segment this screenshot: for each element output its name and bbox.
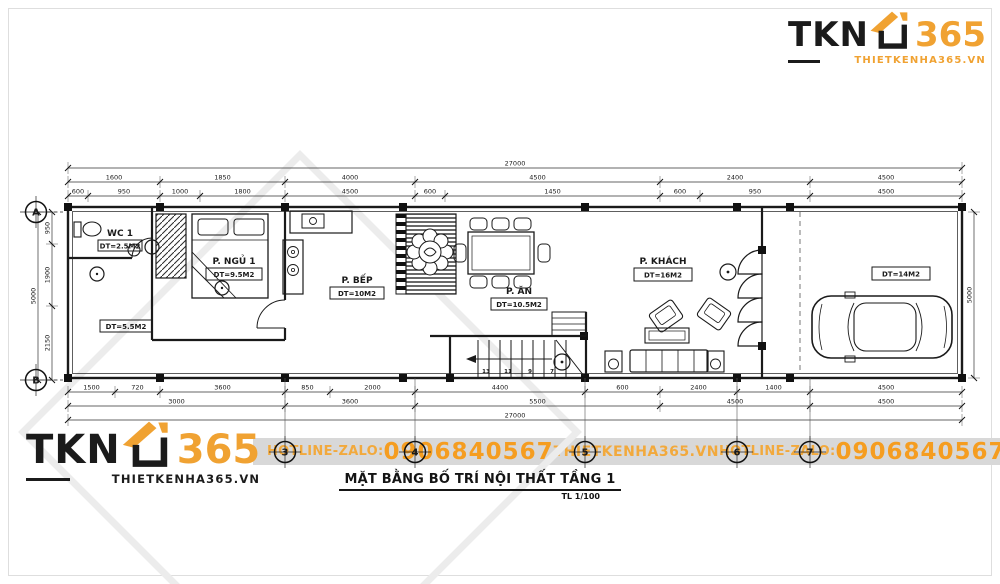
dim-tick	[971, 209, 977, 215]
dining-table	[454, 218, 550, 288]
dim-label: 4500	[878, 384, 895, 392]
plant-partition	[396, 214, 456, 294]
dim-tick	[282, 193, 288, 199]
dim-tick	[807, 179, 813, 185]
dim-tick	[49, 241, 55, 247]
dim-label: 4500	[878, 188, 895, 196]
dim-label: 600	[674, 188, 686, 196]
grid-bubble	[26, 370, 47, 391]
sofa	[630, 350, 708, 372]
dim-tick	[959, 417, 965, 423]
dim-tick	[697, 193, 703, 199]
speaker	[605, 351, 622, 372]
dim-tick	[657, 389, 663, 395]
dim-label: 1600	[106, 174, 123, 182]
dim-label: 4400	[492, 384, 509, 392]
dim-label: 3000	[168, 398, 185, 406]
room-area-dining: DT=10.5M2	[496, 301, 542, 309]
grid-bubble	[26, 202, 47, 223]
dim-tick	[582, 389, 588, 395]
dim-label: 3600	[214, 384, 231, 392]
svg-text:7: 7	[550, 369, 554, 375]
dim-label: 850	[301, 384, 313, 392]
dim-label: 3600	[342, 398, 359, 406]
dim-label: 27000	[505, 412, 526, 420]
drawing-title: MẶT BẰNG BỐ TRÍ NỘI THẤT TẦNG 1	[339, 472, 622, 491]
dim-label: 27000	[505, 160, 526, 168]
hotline-banner: HOTLINE-ZALO: 0906840567 THIETKENHA365.V…	[253, 438, 1000, 465]
dim-tick	[65, 193, 71, 199]
logo-tagline: THIETKENHA365.VN	[112, 474, 260, 486]
logo-underline-bar	[788, 60, 820, 63]
stairs	[466, 312, 586, 377]
dim-label: 1400	[765, 384, 782, 392]
dim-tick	[157, 179, 163, 185]
dim-label: 950	[118, 188, 130, 196]
dim-label: 1800	[234, 188, 251, 196]
logo-365-text: 365	[915, 18, 986, 52]
stove	[283, 240, 303, 294]
dim-tick	[971, 375, 977, 381]
drawing-title-block: MẶT BẰNG BỐ TRÍ NỘI THẤT TẦNG 1 TL 1/100	[330, 468, 630, 501]
logo-tkn-text: TKN	[26, 430, 121, 470]
room-area-living: DT=16M2	[644, 272, 682, 280]
dim-tick	[412, 389, 418, 395]
doors	[132, 238, 285, 328]
logo-top-right: TKN 365 THIETKENHA365.VN	[788, 8, 986, 66]
website-text: THIETKENHA365.VN	[554, 444, 719, 460]
dim-tick	[412, 403, 418, 409]
dim-label: 1850	[214, 174, 231, 182]
dim-label: 4500	[878, 398, 895, 406]
armchair	[696, 297, 732, 331]
dim-label: 2150	[44, 335, 52, 352]
room-area-kitchen: DT=10M2	[338, 290, 376, 298]
dim-tick	[807, 389, 813, 395]
svg-text:11: 11	[504, 369, 512, 375]
page: HOTLINE-ZALO: 0906840567 THIETKENHA365.V…	[0, 0, 1000, 584]
dim-label: 1500	[83, 384, 100, 392]
dim-tick	[442, 193, 448, 199]
wc-sink	[128, 244, 140, 256]
dim-tick	[959, 403, 965, 409]
stairs-arrow	[466, 355, 476, 363]
dim-tick	[157, 193, 163, 199]
coffee-table	[645, 328, 689, 343]
dim-tick	[959, 193, 965, 199]
hotline-number: 0906840567	[384, 439, 554, 465]
dim-label: 1450	[544, 188, 561, 196]
dim-tick	[959, 179, 965, 185]
dim-tick	[959, 165, 965, 171]
dimension-strips: 2700016001850400045002400450060095010001…	[30, 160, 981, 427]
dim-tick	[412, 179, 418, 185]
room-area-garage: DT=14M2	[882, 271, 920, 279]
logo-house-icon	[869, 8, 915, 52]
room-area-bed1: DT=9.5M2	[214, 271, 255, 279]
room-label-dining: P. ĂN	[506, 285, 532, 297]
dim-tick	[807, 193, 813, 199]
dim-tick	[112, 389, 118, 395]
armchair	[648, 299, 684, 333]
dim-tick	[65, 179, 71, 185]
room-label-bed1: P. NGỦ 1	[212, 254, 255, 267]
bed	[192, 214, 268, 298]
dim-label: 950	[749, 188, 761, 196]
room-area-back: DT=5.5M2	[106, 323, 147, 331]
logo-house-icon	[121, 418, 177, 470]
dim-tick	[35, 377, 41, 383]
wc-door-arc	[132, 238, 152, 258]
wc-fixtures	[74, 222, 140, 256]
plant-icon	[407, 229, 453, 275]
logo-tkn-text: TKN	[788, 18, 869, 52]
logo-bottom-left: TKN 365 THIETKENHA365.VN	[26, 418, 260, 486]
dim-label: 600	[616, 384, 628, 392]
hotline-label: HOTLINE-ZALO:	[267, 444, 384, 459]
svg-text:9: 9	[528, 369, 532, 375]
circle-markers	[90, 240, 736, 295]
dim-label: 950	[44, 222, 52, 234]
room-label-wc: WC 1	[107, 229, 133, 239]
dim-label: 2000	[364, 384, 381, 392]
dim-tick	[49, 209, 55, 215]
folding-door	[738, 250, 762, 346]
dim-label: 5500	[529, 398, 546, 406]
dim-tick	[282, 403, 288, 409]
dim-label: 4000	[342, 174, 359, 182]
wardrobe	[156, 214, 186, 278]
drawing-scale: TL 1/100	[330, 492, 630, 501]
dim-label: 1000	[172, 188, 189, 196]
dim-tick	[282, 389, 288, 395]
toilet-bowl	[83, 222, 101, 236]
toilet-tank	[74, 222, 81, 237]
dim-tick	[657, 403, 663, 409]
watermark-diamond	[23, 155, 577, 584]
dim-tick	[734, 389, 740, 395]
room-area-wc: DT=2.5M2	[100, 243, 141, 251]
svg-text:13: 13	[482, 369, 490, 375]
dim-label: 5000	[30, 288, 38, 305]
dim-tick	[959, 389, 965, 395]
bedroom-door-arc	[257, 300, 285, 328]
dim-tick	[65, 165, 71, 171]
car	[812, 292, 952, 362]
dim-tick	[807, 403, 813, 409]
dim-label: 4500	[529, 174, 546, 182]
grid-bubble-label: A	[32, 208, 40, 219]
grid-bubble-label: B	[32, 376, 40, 387]
room-label-living: P. KHÁCH	[639, 255, 686, 267]
dim-tick	[412, 193, 418, 199]
dim-tick	[282, 179, 288, 185]
dim-label: 720	[131, 384, 143, 392]
room-labels: WC 1 DT=2.5M2 P. NGỦ 1 DT=9.5M2 P. BẾP D…	[98, 229, 930, 332]
speaker	[707, 351, 724, 372]
dim-label: 4500	[878, 174, 895, 182]
dim-tick	[327, 389, 333, 395]
dim-tick	[65, 389, 71, 395]
dim-tick	[49, 377, 55, 383]
stair-numbers: 13 11 9 7	[482, 369, 554, 375]
interior-walls	[68, 207, 762, 378]
living-furniture	[605, 297, 732, 372]
dim-tick	[197, 193, 203, 199]
hotline-number-2: 0906840567	[836, 439, 1000, 465]
dim-tick	[85, 193, 91, 199]
kitchen-counter	[283, 211, 352, 294]
dim-tick	[657, 193, 663, 199]
logo-365-text: 365	[177, 430, 261, 470]
logo-tagline: THIETKENHA365.VN	[854, 56, 986, 66]
dim-label: 1900	[44, 267, 52, 284]
dim-label: 600	[72, 188, 84, 196]
dim-label: 4500	[727, 398, 744, 406]
room-label-kitchen: P. BẾP	[341, 273, 373, 286]
dim-tick	[49, 303, 55, 309]
dim-label: 5000	[966, 287, 974, 304]
dim-tick	[157, 389, 163, 395]
dim-label: 600	[424, 188, 436, 196]
dim-label: 2400	[690, 384, 707, 392]
dim-tick	[35, 209, 41, 215]
hotline-label-2: HOTLINE-ZALO:	[719, 444, 836, 459]
dim-label: 4500	[342, 188, 359, 196]
dim-label: 2400	[727, 174, 744, 182]
dim-tick	[65, 403, 71, 409]
logo-underline-bar	[26, 478, 70, 481]
dim-tick	[657, 179, 663, 185]
columns	[64, 203, 966, 382]
outer-walls	[68, 207, 962, 378]
